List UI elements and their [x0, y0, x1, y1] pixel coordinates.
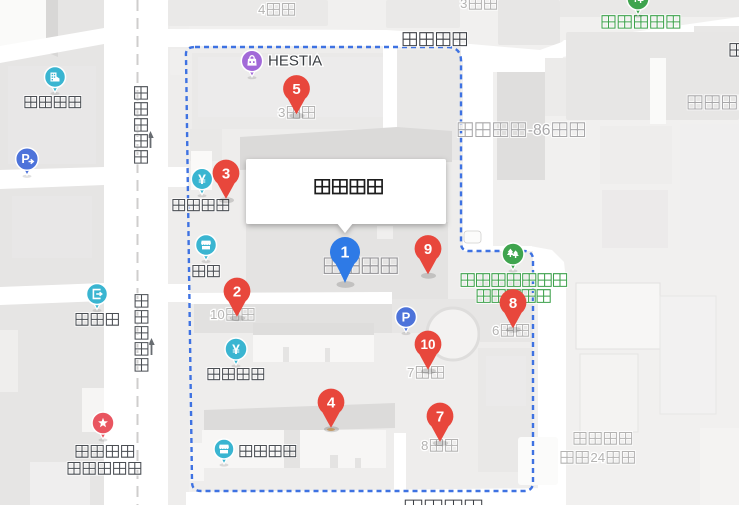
svg-text:8: 8: [421, 438, 428, 453]
svg-text:4: 4: [258, 2, 265, 17]
svg-text:2: 2: [233, 283, 241, 300]
svg-text:5: 5: [292, 81, 300, 98]
svg-text:7: 7: [436, 408, 444, 425]
svg-text:9: 9: [424, 241, 432, 258]
svg-text:¥: ¥: [232, 341, 240, 357]
svg-text:1: 1: [341, 245, 350, 262]
svg-text:-86: -86: [528, 122, 551, 139]
svg-text:6: 6: [492, 323, 499, 338]
svg-text:P: P: [402, 310, 411, 325]
svg-text:10: 10: [420, 337, 435, 352]
svg-text:24: 24: [590, 450, 605, 465]
svg-text:3: 3: [460, 0, 467, 11]
svg-text:4: 4: [327, 394, 336, 411]
svg-text:8: 8: [509, 295, 517, 312]
svg-text:10: 10: [210, 307, 225, 322]
svg-text:3: 3: [278, 105, 285, 120]
svg-text:3: 3: [222, 165, 230, 182]
svg-text:7: 7: [407, 365, 414, 380]
svg-text:HESTIA: HESTIA: [268, 53, 322, 70]
svg-text:¥: ¥: [198, 171, 206, 187]
svg-text:P: P: [21, 152, 29, 166]
